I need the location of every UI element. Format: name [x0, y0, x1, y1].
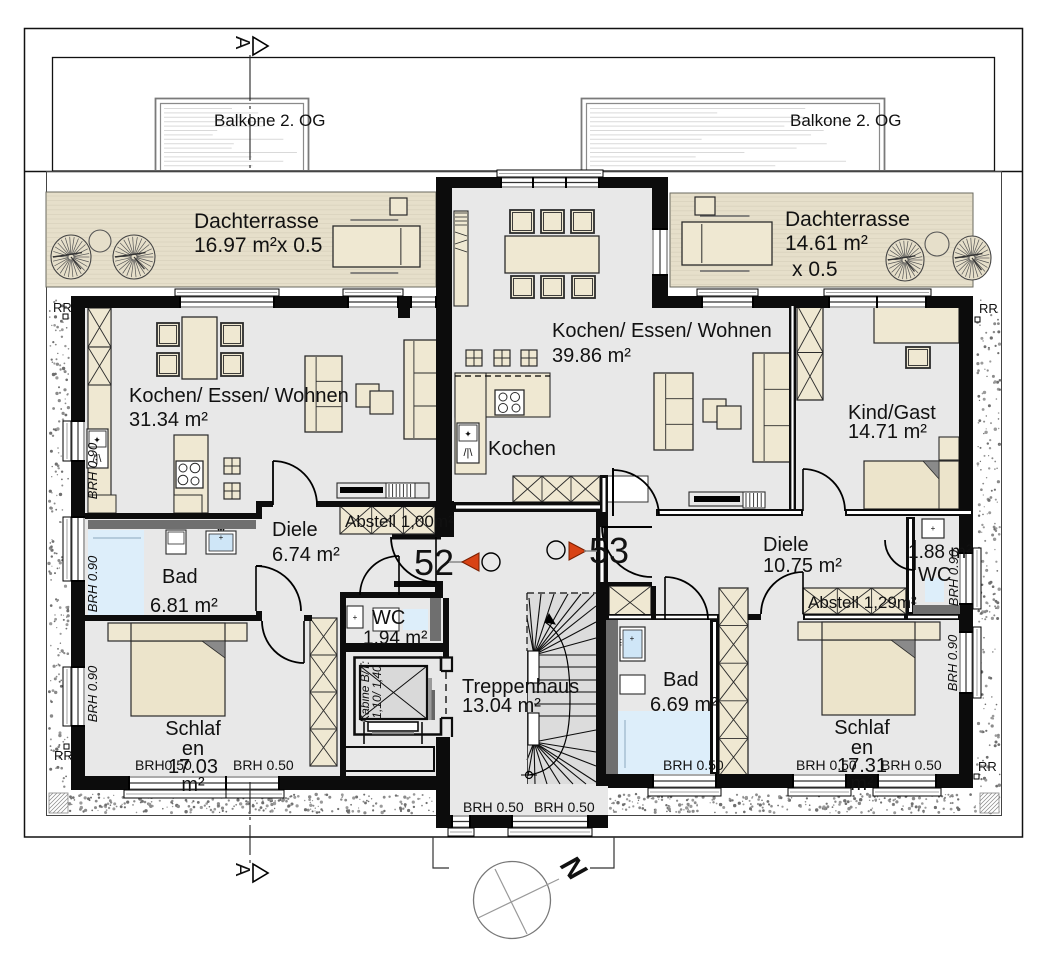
svg-text:BRH 0.90: BRH 0.90: [945, 634, 960, 691]
svg-text:A: A: [231, 36, 253, 50]
svg-text:Schlaf: Schlaf: [834, 717, 890, 739]
svg-text:BRH 0.50: BRH 0.50: [534, 799, 595, 815]
svg-text:/|\: /|\: [464, 447, 474, 459]
svg-text:+: +: [630, 634, 635, 643]
svg-text:WC: WC: [372, 607, 405, 629]
svg-text:1,10/ 1,40: 1,10/ 1,40: [370, 665, 384, 719]
svg-text:BRH 0.90: BRH 0.90: [85, 665, 100, 722]
svg-text:14.71 m²: 14.71 m²: [848, 421, 927, 443]
svg-text:x 0.5: x 0.5: [792, 258, 838, 281]
svg-text:BRH 0.90: BRH 0.90: [85, 555, 100, 612]
svg-text:BRH0.50: BRH0.50: [135, 757, 192, 773]
svg-text:+: +: [931, 524, 936, 533]
svg-text:1.94 m²: 1.94 m²: [363, 628, 427, 649]
svg-text:Balkone 2. OG: Balkone 2. OG: [790, 111, 902, 130]
svg-text:m²: m²: [181, 774, 205, 796]
svg-text:16.97 m²x 0.5: 16.97 m²x 0.5: [194, 234, 322, 257]
svg-text:A: A: [231, 863, 253, 877]
svg-text:+: +: [353, 613, 358, 622]
svg-text:Dachterrasse: Dachterrasse: [785, 208, 910, 231]
svg-text:m²: m²: [850, 773, 874, 795]
svg-text:6.69 m²: 6.69 m²: [650, 694, 718, 716]
svg-text:BRH 0.50: BRH 0.50: [663, 757, 724, 773]
svg-text:BRH 0.90: BRH 0.90: [85, 442, 100, 499]
svg-text:Kochen/ Essen/ Wohnen: Kochen/ Essen/ Wohnen: [552, 320, 772, 342]
svg-text:1.88 m²: 1.88 m²: [908, 542, 972, 563]
svg-text:Dachterrasse: Dachterrasse: [194, 210, 319, 233]
svg-text:52: 52: [414, 542, 454, 583]
svg-text:RR: RR: [978, 759, 997, 774]
svg-text:Schlaf: Schlaf: [165, 718, 221, 740]
svg-text:RR: RR: [54, 748, 73, 763]
svg-text:Abstell 1,00m²: Abstell 1,00m²: [345, 512, 454, 531]
svg-text:10.75 m²: 10.75 m²: [763, 555, 842, 577]
svg-text:BRH 0.50: BRH 0.50: [233, 757, 294, 773]
svg-text:6.74 m²: 6.74 m²: [272, 544, 340, 566]
svg-text:31.34 m²: 31.34 m²: [129, 409, 208, 431]
svg-text:BRH 0.90: BRH 0.90: [946, 549, 961, 606]
svg-text:39.86 m²: 39.86 m²: [552, 345, 631, 367]
svg-text:13.04 m²: 13.04 m²: [462, 695, 541, 717]
svg-text:+: +: [219, 533, 224, 542]
svg-text:BRH 0.50: BRH 0.50: [463, 799, 524, 815]
svg-text:RR: RR: [53, 300, 72, 315]
svg-text:⋮: ⋮: [617, 638, 625, 647]
svg-text:RR: RR: [979, 301, 998, 316]
svg-text:14.61 m²: 14.61 m²: [785, 232, 868, 255]
svg-text:Abstell 1,29m²: Abstell 1,29m²: [808, 593, 917, 612]
svg-text:Diele: Diele: [763, 534, 809, 556]
svg-text:Bad: Bad: [162, 566, 198, 588]
svg-text:Kochen: Kochen: [488, 438, 556, 460]
svg-text:Diele: Diele: [272, 519, 318, 541]
svg-text:BRH 0.50: BRH 0.50: [796, 757, 857, 773]
svg-text:6.81 m²: 6.81 m²: [150, 595, 218, 617]
svg-text:Kochen/ Essen/ Wohnen: Kochen/ Essen/ Wohnen: [129, 385, 349, 407]
svg-text:Balkone 2. OG: Balkone 2. OG: [214, 111, 326, 130]
svg-text:BRH 0.50: BRH 0.50: [881, 757, 942, 773]
svg-text:✦: ✦: [464, 429, 472, 439]
svg-text:Bad: Bad: [663, 669, 699, 691]
